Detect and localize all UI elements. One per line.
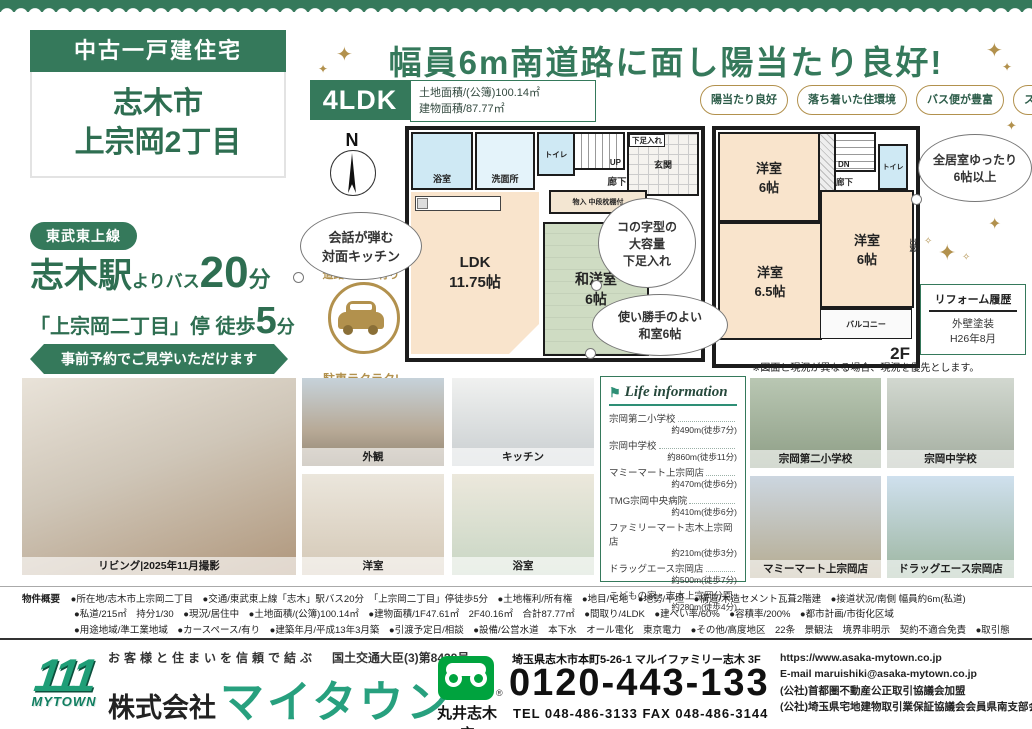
walk-minutes: 5	[256, 300, 277, 343]
property-outline: 物件概要 ●所在地/志木市上宗岡二丁目 ●交通/東武東上線「志木」駅バス20分 …	[0, 586, 1032, 640]
photo-kitchen: キッチン	[452, 378, 594, 466]
association-2: (公社)埼玉県宅地建物取引業保証協議会会員県南支部会員	[780, 699, 1032, 715]
poi-name: ドラッグエース宗岡店	[609, 561, 704, 575]
sparkle-icon: ✦	[986, 38, 1003, 63]
photo-caption: キッチン	[452, 448, 594, 466]
bubble-kitchen: 会話が弾む 対面キッチン	[300, 212, 422, 280]
star-icon: ✦	[938, 240, 956, 266]
branch-name: 丸井志木店	[434, 702, 500, 729]
reform-title: リフォーム履歴	[929, 291, 1017, 312]
photo-caption: マミーマート上宗岡店	[750, 560, 881, 578]
company-name: マイタウン	[220, 666, 453, 729]
sparkle-icon: ✦	[318, 62, 328, 76]
station-name: 志木駅	[30, 248, 132, 297]
title-card: 中古一戸建住宅 志木市 上宗岡2丁目	[30, 30, 286, 178]
feature-badge: 落ち着いた住環境	[797, 85, 907, 115]
bus-minutes: 20	[200, 248, 249, 298]
building-area: 建物面積/87.77㎡	[419, 101, 595, 118]
poi-name: 宗岡中学校	[609, 438, 657, 452]
poi-name: ファミリーマート志木上宗岡店	[609, 520, 733, 548]
sparkle-icon: ✦	[336, 42, 353, 67]
scallop-border	[0, 0, 1032, 22]
poi-distance: 約470m(徒歩6分)	[609, 479, 737, 489]
website-url: https://www.asaka-mytown.co.jp	[780, 650, 1032, 666]
poi-name: マミーマート上宗岡店	[609, 465, 704, 479]
life-item: 宗岡中学校 約860m(徒歩11分)	[609, 438, 737, 462]
sparkle-icon: ✦	[988, 214, 1001, 234]
photo-caption: 洋室	[302, 557, 444, 575]
label-bay-window: 出窓	[907, 238, 917, 252]
bubble-all-rooms: 全居室ゆったり 6帖以上	[918, 134, 1032, 202]
access-via: よりバス	[132, 267, 200, 292]
outline-text: ●所在地/志木市上宗岡二丁目 ●交通/東武東上線「志木」駅バス20分 「上宗岡二…	[71, 594, 966, 605]
room-bath: 浴室	[411, 132, 473, 190]
land-area: 土地面積/(公簿)100.14㎡	[419, 85, 595, 102]
company-prefix: 株式会社	[108, 686, 216, 725]
bubble-washitsu: 使い勝手のよい 和室6帖	[592, 294, 728, 356]
area-box: 土地面積/(公簿)100.14㎡ 建物面積/87.77㎡	[410, 80, 596, 122]
label-hallway-2f: 廊下	[836, 176, 853, 188]
outline-label: 物件概要	[22, 594, 60, 605]
outline-line2: ●私道/215㎡ 持分1/30 ●現況/居住中 ●土地面積/(公簿)100.14…	[22, 607, 1010, 622]
compass-icon	[330, 150, 376, 196]
tel-fax: TEL 048-486-3133 FAX 048-486-3144	[513, 706, 768, 721]
poi-distance: 約210m(徒歩3分)	[609, 548, 737, 558]
logo-numbers: 111	[20, 648, 108, 702]
access-stop-row: 「上宗岡二丁目」停 徒歩 5 分	[30, 300, 295, 343]
minutes-unit: 分	[277, 313, 295, 339]
poi-distance: 約410m(徒歩6分)	[609, 507, 737, 517]
life-information-box: ⚑ Life information 宗岡第二小学校 約490m(徒歩7分) 宗…	[600, 376, 746, 582]
mytown-logo: 111 MYTOWN	[24, 648, 104, 709]
poi-name: 宗岡第二小学校	[609, 411, 676, 425]
compass-north-label: N	[330, 130, 374, 151]
stairs-up: UP	[573, 132, 625, 170]
rail-line-badge: 東武東上線	[30, 222, 137, 250]
photo-living: リビング|2025年11月撮影	[22, 378, 296, 575]
feature-badge: 陽当たり良好	[700, 85, 788, 115]
photo-school2: 宗岡中学校	[887, 378, 1014, 468]
tagline: お客様と住まいを信頼で結ぶ	[108, 649, 316, 666]
email: E-mail maruishiki@asaka-mytown.co.jp	[780, 666, 1032, 682]
photo-caption: 浴室	[452, 557, 594, 575]
freedial-icon	[438, 656, 494, 700]
room-bedroom-a: 洋室 6帖	[718, 132, 820, 222]
floorplan-2f: 洋室 6帖 DN トイレ 廊下 洋室 6帖 洋室 6.5帖 バルコニー 出窓 2…	[712, 126, 920, 368]
layout-badge: 4LDK	[310, 80, 410, 120]
photo-store2: ドラッグエース宗岡店	[887, 476, 1014, 578]
poi-distance: 約490m(徒歩7分)	[609, 425, 737, 435]
photo-store1: マミーマート上宗岡店	[750, 476, 881, 578]
sparkle-icon: ✧	[962, 252, 970, 263]
car-icon	[328, 282, 400, 354]
photo-caption: リビング|2025年11月撮影	[22, 557, 296, 575]
life-information-title: ⚑ Life information	[609, 384, 737, 406]
registered-mark: ®	[496, 688, 503, 698]
photo-exterior: 外観	[302, 378, 444, 466]
room-ldk: LDK 11.75帖	[411, 192, 539, 354]
life-item: マミーマート上宗岡店 約470m(徒歩6分)	[609, 465, 737, 489]
company-name-row: 株式会社 マイタウン	[108, 666, 453, 729]
photo-bedroom: 洋室	[302, 474, 444, 575]
life-item: ファミリーマート志木上宗岡店 約210m(徒歩3分)	[609, 520, 737, 558]
stairs-down: DN	[834, 132, 876, 172]
reform-history-box: リフォーム履歴 外壁塗装 H26年8月	[920, 284, 1026, 355]
headline: 幅員6m南道路に面し陽当たり良好!	[300, 36, 1032, 84]
poi-distance: 約860m(徒歩11分)	[609, 452, 737, 462]
property-category: 中古一戸建住宅	[30, 30, 286, 72]
life-item: 宗岡第二小学校 約490m(徒歩7分)	[609, 411, 737, 435]
sparkle-icon: ✦	[1002, 60, 1012, 74]
poi-name: TMG宗岡中央病院	[609, 493, 687, 507]
balcony: バルコニー	[820, 308, 912, 339]
photo-bathroom: 浴室	[452, 474, 594, 575]
room-toilet: トイレ	[537, 132, 575, 176]
feature-badges: 陽当たり良好 落ち着いた住環境 バス便が豊富 スーパー至近で便利	[700, 85, 1032, 115]
label-shoe-closet: 下足入れ	[629, 134, 665, 147]
life-information-label: Life information	[625, 384, 728, 401]
life-item: TMG宗岡中央病院 約410m(徒歩6分)	[609, 493, 737, 517]
flyer-page: 中古一戸建住宅 志木市 上宗岡2丁目 幅員6m南道路に面し陽当たり良好! ✦ ✦…	[0, 0, 1032, 729]
floorplan-note: ※図面と現況が異なる場合、現況を優先とします。	[752, 359, 979, 374]
reform-work: 外壁塗装	[925, 317, 1021, 332]
outline-line3: ●用途地域/準工業地域 ●カースペース/有り ●建築年月/平成13年3月築 ●引…	[22, 623, 1010, 638]
room-toilet-2f: トイレ	[878, 144, 908, 190]
bubble-shoe-closet: コの字型の 大容量 下足入れ	[598, 198, 696, 288]
location-district: 上宗岡2丁目	[32, 123, 284, 162]
photo-caption: ドラッグエース宗岡店	[887, 560, 1014, 578]
stove-icon	[417, 198, 428, 209]
reform-date: H26年8月	[925, 332, 1021, 347]
feature-badge: バス便が豊富	[916, 85, 1004, 115]
photo-school1: 宗岡第二小学校	[750, 378, 881, 468]
sparkle-icon: ✦	[1006, 118, 1017, 134]
footer-links: https://www.asaka-mytown.co.jp E-mail ma…	[780, 650, 1032, 715]
outline-line1: 物件概要 ●所在地/志木市上宗岡二丁目 ●交通/東武東上線「志木」駅バス20分 …	[22, 592, 1010, 607]
photo-caption: 外観	[302, 448, 444, 466]
room-bedroom-b: 洋室 6帖	[820, 190, 914, 308]
association-1: (公社)首都圏不動産公正取引協議会加盟	[780, 683, 1032, 699]
freedial-number: 0120-443-133	[509, 662, 770, 705]
sparkle-icon: ✧	[924, 236, 932, 247]
parking-badge: 道路ゆとり有り 駐車ラクラク!	[306, 266, 416, 387]
location-city: 志木市	[32, 84, 284, 123]
flag-icon: ⚑	[609, 385, 621, 401]
room-washroom: 洗面所	[475, 132, 535, 190]
footer-tagline-row: お客様と住まいを信頼で結ぶ 国土交通大臣(3)第8439号	[108, 649, 469, 666]
room-bedroom-c: 洋室 6.5帖	[718, 222, 822, 340]
property-location: 志木市 上宗岡2丁目	[30, 72, 286, 178]
minutes-unit: 分	[249, 262, 271, 294]
feature-badge: スーパー至近で便利	[1013, 85, 1032, 115]
poi-distance: 約500m(徒歩7分)	[609, 575, 737, 585]
reservation-banner: 事前予約でご見学いただけます	[30, 344, 288, 374]
access-station-row: 志木駅 よりバス 20 分	[30, 248, 271, 298]
label-hallway-1f: 廊下	[539, 174, 695, 188]
bus-stop: 「上宗岡二丁目」停 徒歩	[30, 310, 256, 339]
photo-caption: 宗岡第二小学校	[750, 450, 881, 468]
photo-caption: 宗岡中学校	[887, 450, 1014, 468]
life-item: ドラッグエース宗岡店 約500m(徒歩7分)	[609, 561, 737, 585]
